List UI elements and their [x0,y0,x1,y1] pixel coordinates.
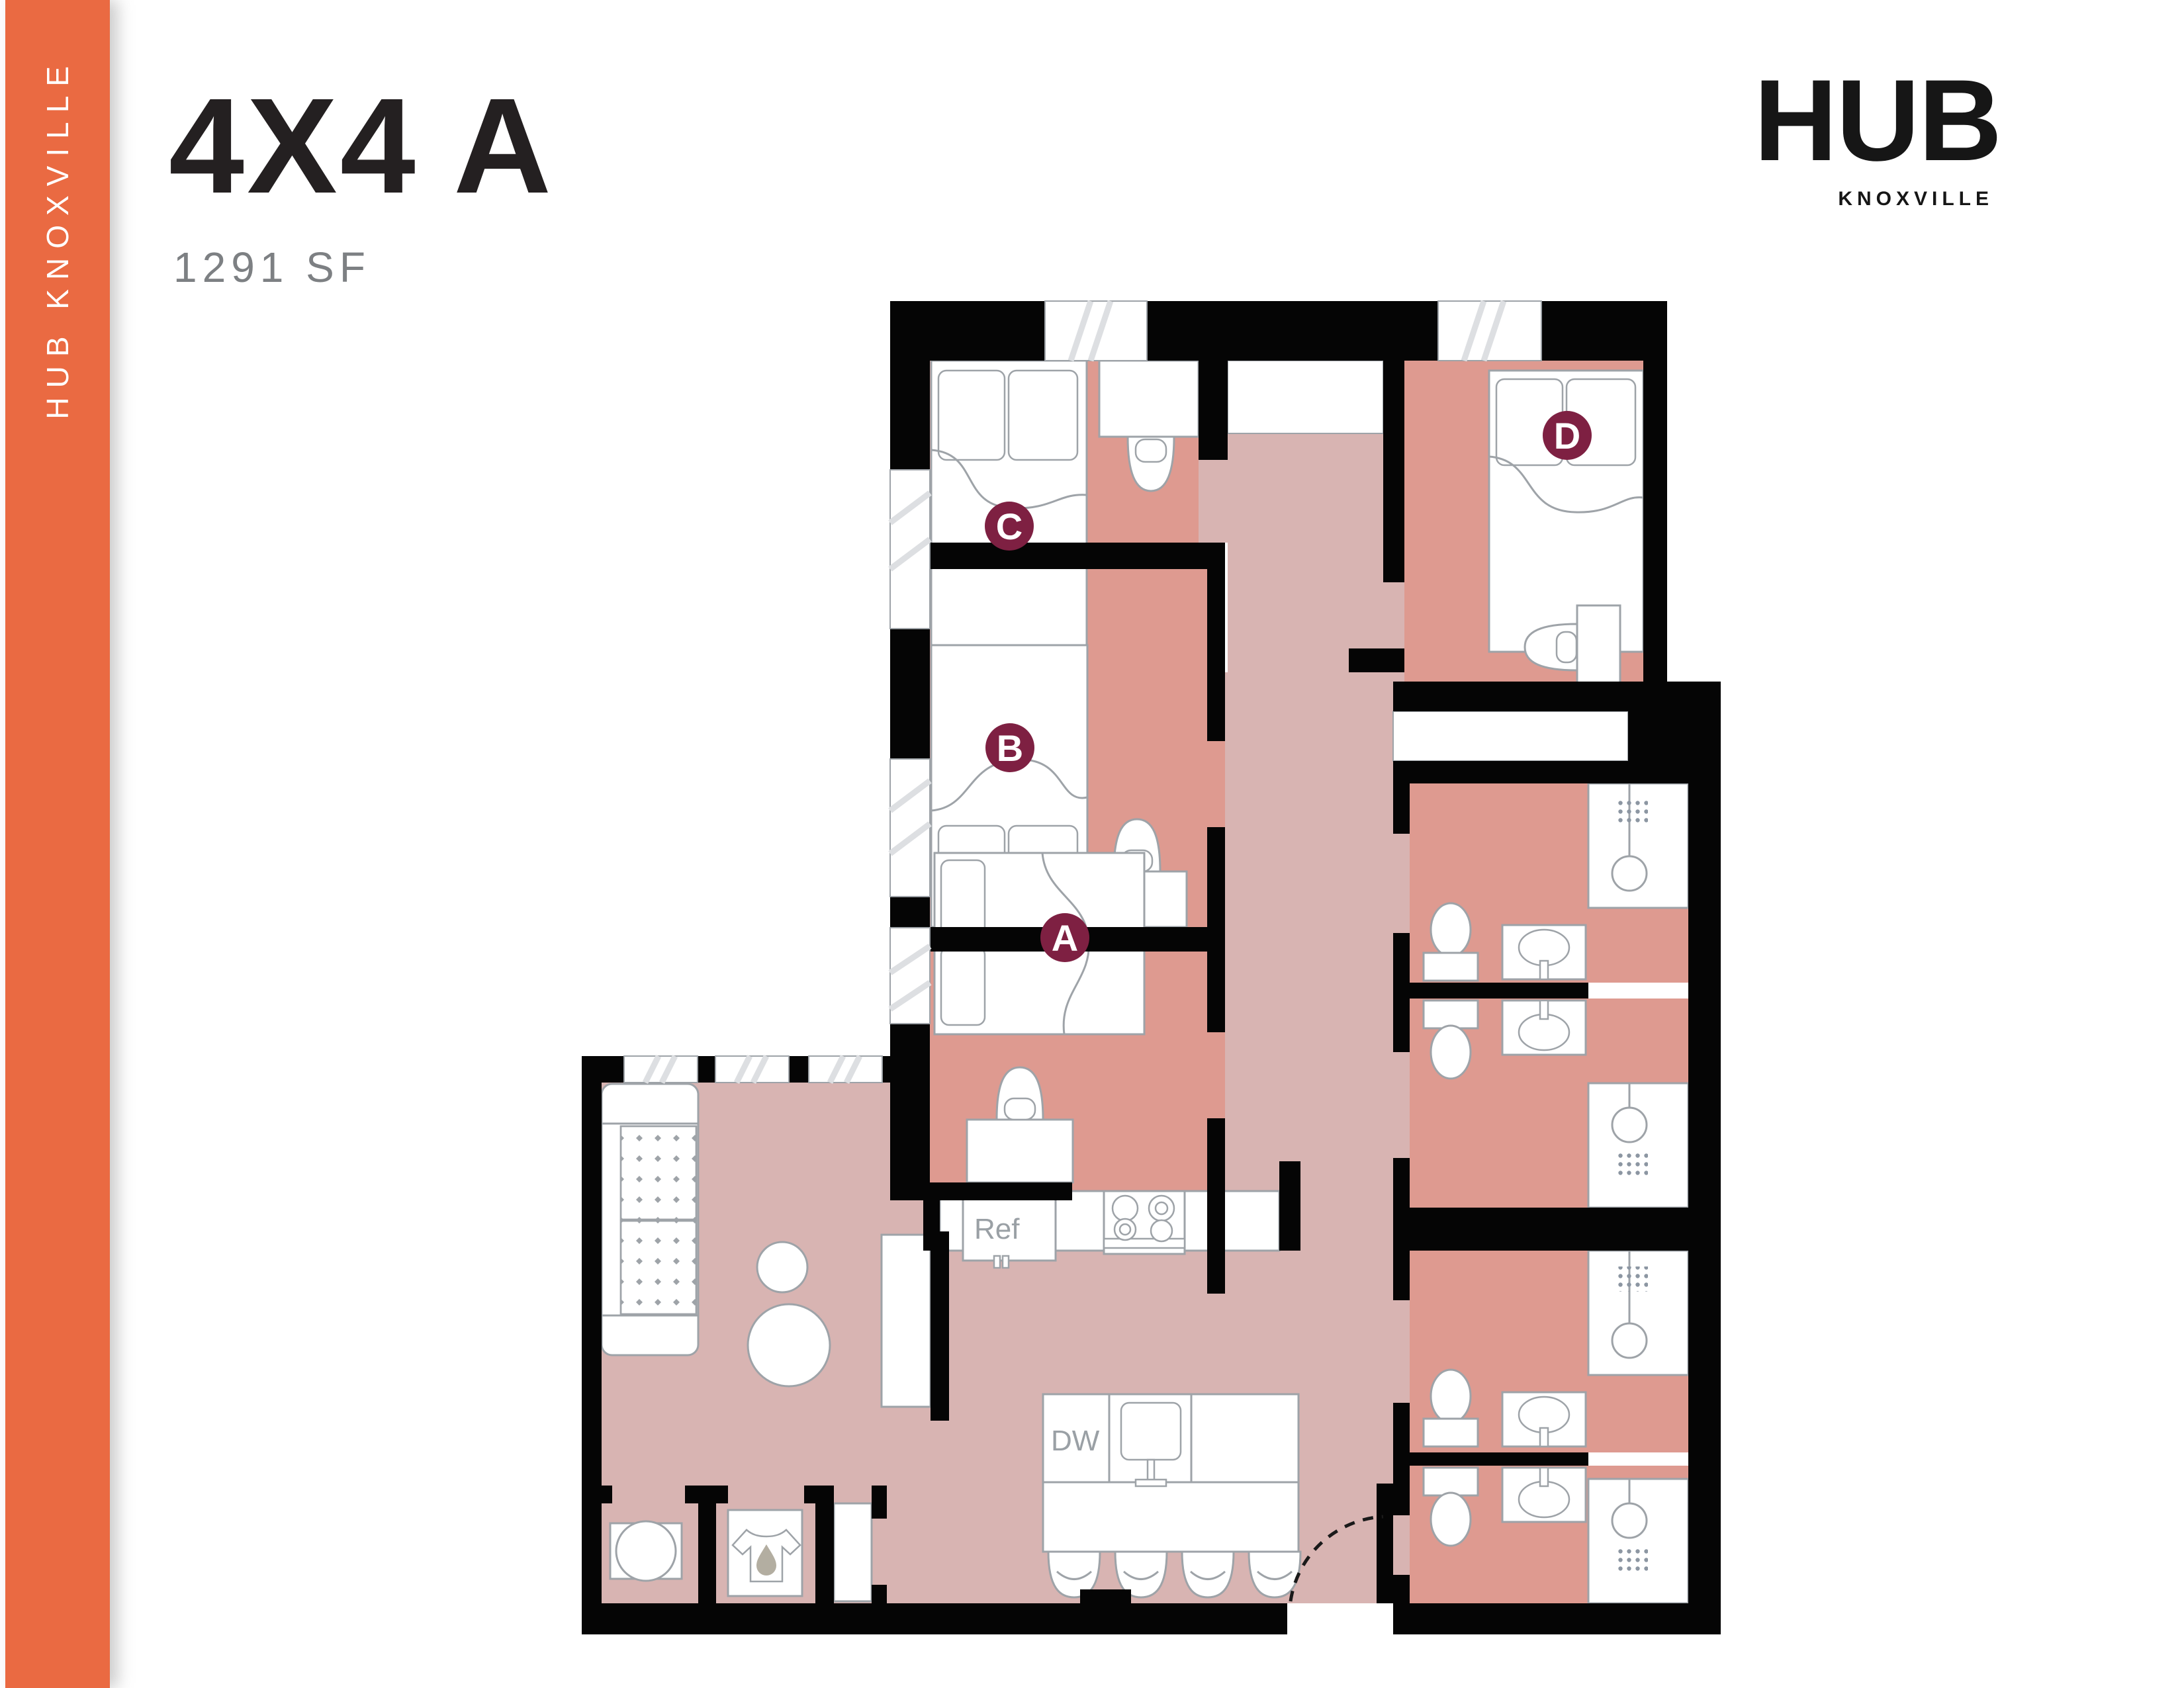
toilet-tank [1424,1419,1478,1446]
sidebar-vertical-label: HUB KNOXVILLE [40,57,75,420]
fridge-handle [994,1256,1000,1268]
wall [1393,1208,1688,1251]
wall [685,1486,698,1503]
chair-seat [1005,1098,1035,1120]
burner [1120,1224,1130,1235]
wall [1080,1589,1131,1634]
desk-icon [1577,605,1620,688]
faucet-icon [1540,1468,1548,1486]
room-badge-c-label: C [996,506,1023,547]
wall [1383,361,1404,582]
wall [1393,1603,1721,1634]
window-icon [1045,301,1147,361]
shower-drain-dots [1615,1153,1648,1178]
chair-seat [1557,632,1576,662]
toilet-icon [1431,1370,1471,1423]
room-badge-b-label: B [997,727,1023,769]
closet [1228,361,1383,433]
wall [1349,648,1404,672]
wall [698,1486,716,1603]
toilet-tank [1424,1000,1478,1028]
wall [815,1486,834,1603]
wall [582,1603,1287,1634]
island-sink [1121,1403,1181,1460]
desk-icon [1099,361,1199,437]
logo-brand-text: HUB [1754,63,2001,179]
wall [930,543,1225,569]
wall [1393,682,1688,711]
window-icon [624,1056,698,1083]
window-icon [809,1056,882,1083]
window-icon [890,470,930,629]
lounge-chair-icon [748,1304,830,1386]
wall [1207,567,1225,741]
page-title: 4X4 A [169,78,554,214]
interior-door [834,1503,872,1601]
brand-sidebar: HUB KNOXVILLE [5,0,110,1688]
vestibule-floor [1228,433,1383,672]
wall [1404,1452,1588,1466]
room-badge-a-label: A [1052,917,1078,959]
shower-drain-dots [1615,799,1648,824]
wall [1279,1161,1300,1251]
wall [804,1486,815,1503]
washer-drum [616,1521,676,1581]
wall [1688,783,1721,1634]
toilet-tank [1424,1468,1478,1495]
burner [1151,1220,1172,1241]
wall [931,1231,949,1421]
ottoman-icon [757,1242,807,1292]
wall [1199,361,1228,460]
stove-front [1104,1239,1185,1248]
shower-head-icon [1612,856,1647,891]
faucet-icon [1540,961,1548,979]
floor-plan: Ref DW [569,265,1734,1641]
wall [1393,783,1410,834]
burner [1156,1202,1167,1214]
wall [1643,301,1667,688]
wall [1393,1158,1410,1208]
wall [1207,827,1225,1032]
fridge-handle [1003,1256,1009,1268]
logo: HUB KNOXVILLE [1754,63,1993,210]
room-badge-d-label: D [1554,415,1580,457]
wall [872,1585,887,1603]
wall [600,1486,612,1503]
pillow-icon [941,947,985,1025]
wall [909,301,1667,361]
sofa-cushion-tufting [621,1126,696,1220]
door-c-threshold [1199,460,1228,543]
area-label: 1291 SF [173,246,371,289]
dishwasher-label: DW [1051,1425,1100,1457]
toilet-icon [1431,1493,1471,1546]
chair-seat [1136,439,1166,462]
wall [890,1182,1072,1200]
window-icon [890,759,930,897]
wall [1393,1251,1410,1300]
shower-head-icon [1612,1323,1647,1358]
toilet-icon [1431,903,1471,956]
wall [872,1486,887,1519]
wall [1628,711,1688,761]
sidebar-text-wrap: HUB KNOXVILLE [5,36,110,440]
closet [1393,711,1628,761]
refrigerator-label: Ref [974,1213,1020,1245]
wall [1393,1575,1410,1603]
shower-icon [1588,1479,1688,1603]
window-icon [890,928,930,1024]
wall [1393,1403,1410,1515]
wall [716,1486,728,1503]
window-icon [715,1056,789,1083]
wall [1207,1118,1225,1294]
door-leaf [1384,1515,1393,1603]
shower-drain-dots [1615,1266,1648,1292]
toilet-tank [1424,953,1478,981]
faucet-icon [1540,1000,1548,1019]
faucet-base [1136,1480,1166,1486]
pillow-icon [1009,371,1077,460]
burner [1113,1196,1138,1221]
pillow-icon [941,860,985,938]
shower-head-icon [1612,1108,1647,1142]
desk-icon [967,1120,1073,1182]
faucet-icon [1540,1428,1548,1446]
window-icon [1438,301,1541,361]
logo-city-text: KNOXVILLE [1754,188,1993,210]
sofa-cushion-tufting [621,1221,696,1314]
wall [1393,933,1410,1052]
wall [582,1056,602,1634]
pillow-icon [938,371,1005,460]
shower-icon [1588,1083,1688,1208]
shower-drain-dots [1615,1548,1648,1574]
tv-stand-icon [882,1235,931,1407]
shower-head-icon [1612,1503,1647,1538]
wall [1404,983,1588,999]
wall [1393,761,1688,783]
toilet-icon [1431,1026,1471,1079]
